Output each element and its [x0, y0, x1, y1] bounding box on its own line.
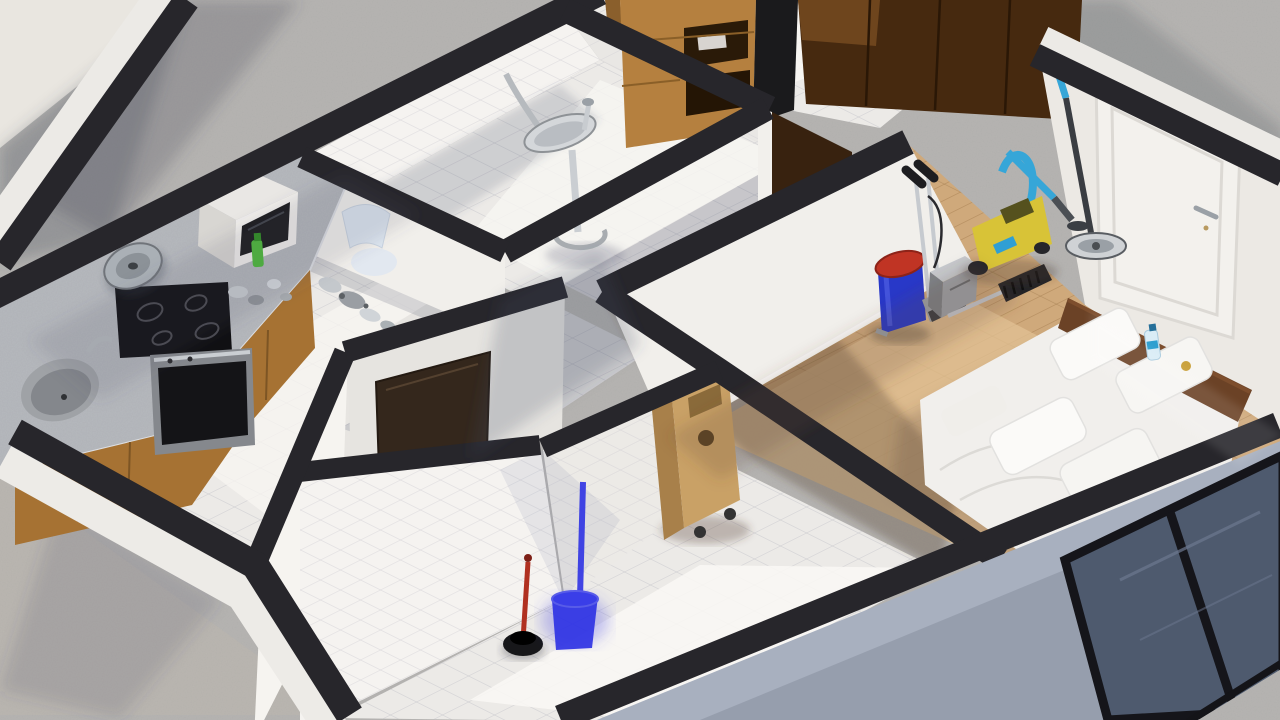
vacuum-wheel: [1034, 242, 1050, 254]
basin-drain: [61, 394, 67, 400]
oven-knob: [188, 357, 193, 362]
small-item[interactable]: [1181, 361, 1191, 371]
cart-wheel: [724, 508, 736, 520]
lid-knob: [128, 263, 138, 270]
oven-door[interactable]: [158, 361, 248, 445]
faucet-bit: [339, 293, 345, 299]
apartment-render: [0, 0, 1280, 720]
vacuum-nozzle: [1067, 221, 1089, 231]
plunger-cup-top: [510, 631, 536, 645]
door-keyhole: [1204, 226, 1209, 231]
brush-handle[interactable]: [580, 482, 583, 598]
bottle-cap: [1149, 323, 1157, 331]
bucket-rim: [552, 591, 598, 607]
plunger-handle-tip: [524, 554, 532, 562]
sink-tap-knob: [582, 98, 594, 106]
scene-canvas: [0, 0, 1280, 720]
cart-wheel: [694, 526, 706, 538]
base-center: [1092, 242, 1100, 250]
chair-seat[interactable]: [351, 248, 397, 276]
faucet-bit: [364, 304, 369, 309]
oven[interactable]: [150, 348, 255, 455]
